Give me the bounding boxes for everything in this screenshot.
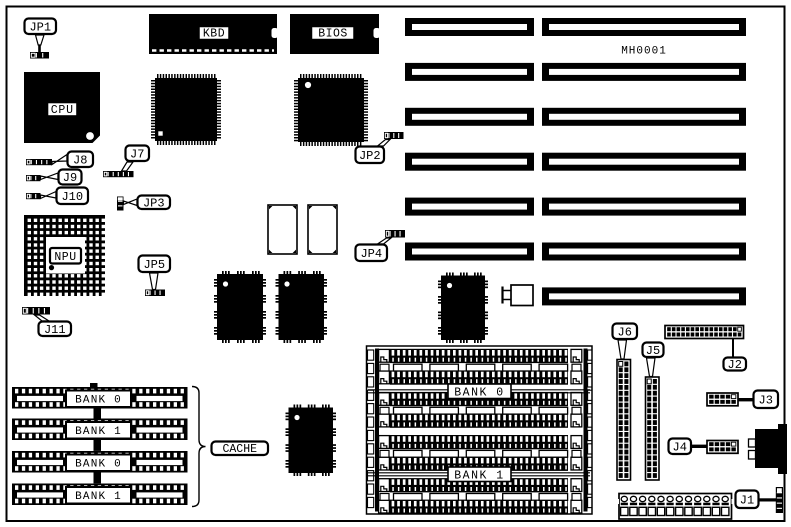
svg-text:J6: J6 [618,325,632,339]
svg-text:JP4: JP4 [360,247,382,261]
svg-text:JP1: JP1 [29,20,51,34]
svg-text:J8: J8 [73,153,87,167]
svg-text:BANK 1: BANK 1 [454,470,504,483]
svg-text:BANK 0: BANK 0 [454,387,504,400]
svg-text:J11: J11 [44,323,66,337]
svg-text:BANK 0: BANK 0 [75,395,122,407]
svg-text:J9: J9 [63,171,77,185]
svg-text:J7: J7 [130,147,144,161]
svg-text:BANK 0: BANK 0 [75,459,122,471]
svg-text:KBD: KBD [203,28,225,41]
svg-text:BIOS: BIOS [318,28,348,41]
svg-text:MH0001: MH0001 [621,46,667,58]
svg-text:JP2: JP2 [359,149,381,163]
svg-text:J1: J1 [740,493,754,507]
svg-text:CACHE: CACHE [222,443,257,456]
svg-text:JP3: JP3 [143,196,165,210]
svg-text:BANK 1: BANK 1 [75,426,122,438]
svg-text:J10: J10 [61,190,83,204]
svg-text:CPU: CPU [51,104,74,117]
svg-text:J4: J4 [673,440,687,454]
svg-text:JP5: JP5 [143,258,165,272]
svg-text:BANK 1: BANK 1 [75,491,122,503]
svg-text:J3: J3 [759,393,773,407]
svg-text:NPU: NPU [54,251,76,264]
svg-text:J2: J2 [728,358,742,372]
svg-text:J5: J5 [646,344,660,358]
